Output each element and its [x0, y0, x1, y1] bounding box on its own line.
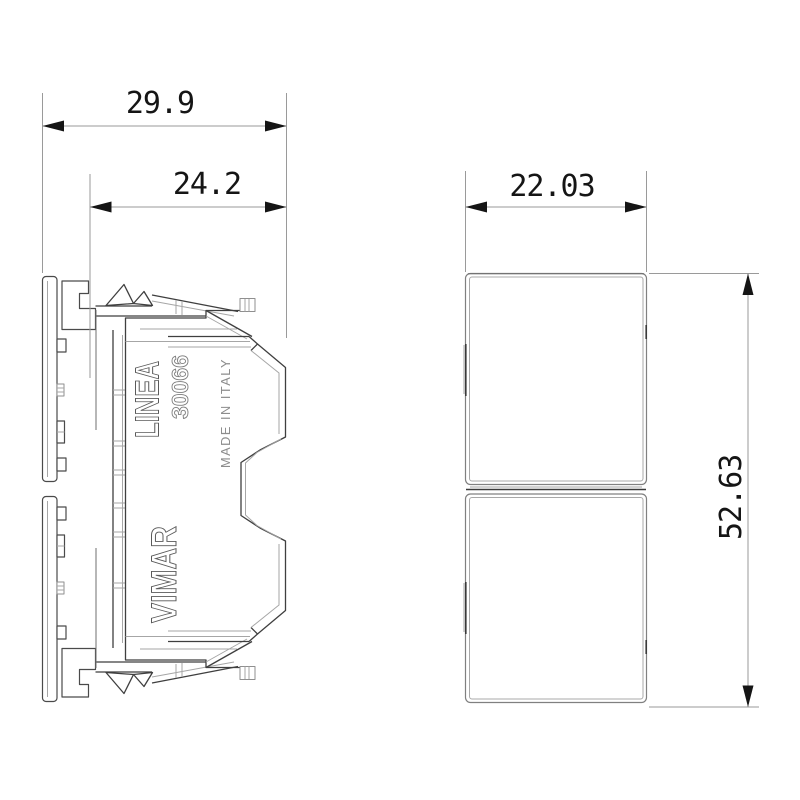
dim-cover-depth: 24.2: [90, 167, 287, 378]
drawing-canvas: LINEA 30066 MADE IN ITALY VIMAR 29.9: [0, 0, 800, 800]
dim-arrow-left: [90, 202, 112, 213]
front-bottom-rocker: [466, 494, 647, 703]
dim-arrow-right: [265, 202, 287, 213]
brand-embossed-label: VIMAR: [145, 526, 184, 623]
dim-front-width-value: 22.03: [509, 169, 594, 204]
dim-front-height: 52.63: [649, 274, 759, 708]
dim-arrow-right: [625, 202, 647, 213]
dim-overall-depth-value: 29.9: [126, 86, 194, 121]
dim-front-height-value: 52.63: [714, 455, 749, 540]
dim-arrow-left: [43, 121, 65, 132]
dim-arrow-right: [265, 121, 287, 132]
dim-front-width: 22.03: [466, 169, 647, 272]
front-view: [464, 274, 647, 703]
side-view-markings: LINEA 30066 MADE IN ITALY VIMAR: [129, 355, 234, 623]
series-embossed-label: LINEA: [129, 361, 166, 438]
front-top-rocker: [466, 274, 647, 485]
dim-arrow-left: [466, 202, 488, 213]
dim-cover-depth-value: 24.2: [173, 167, 241, 202]
side-view: LINEA 30066 MADE IN ITALY VIMAR: [43, 277, 286, 702]
side-rocker-plate: [43, 277, 58, 482]
model-embossed-label: 30066: [167, 355, 193, 419]
technical-drawing: LINEA 30066 MADE IN ITALY VIMAR 29.9: [0, 0, 800, 800]
origin-embossed-label: MADE IN ITALY: [219, 358, 233, 468]
dim-arrow-top: [743, 274, 754, 296]
dim-arrow-bottom: [743, 686, 754, 708]
